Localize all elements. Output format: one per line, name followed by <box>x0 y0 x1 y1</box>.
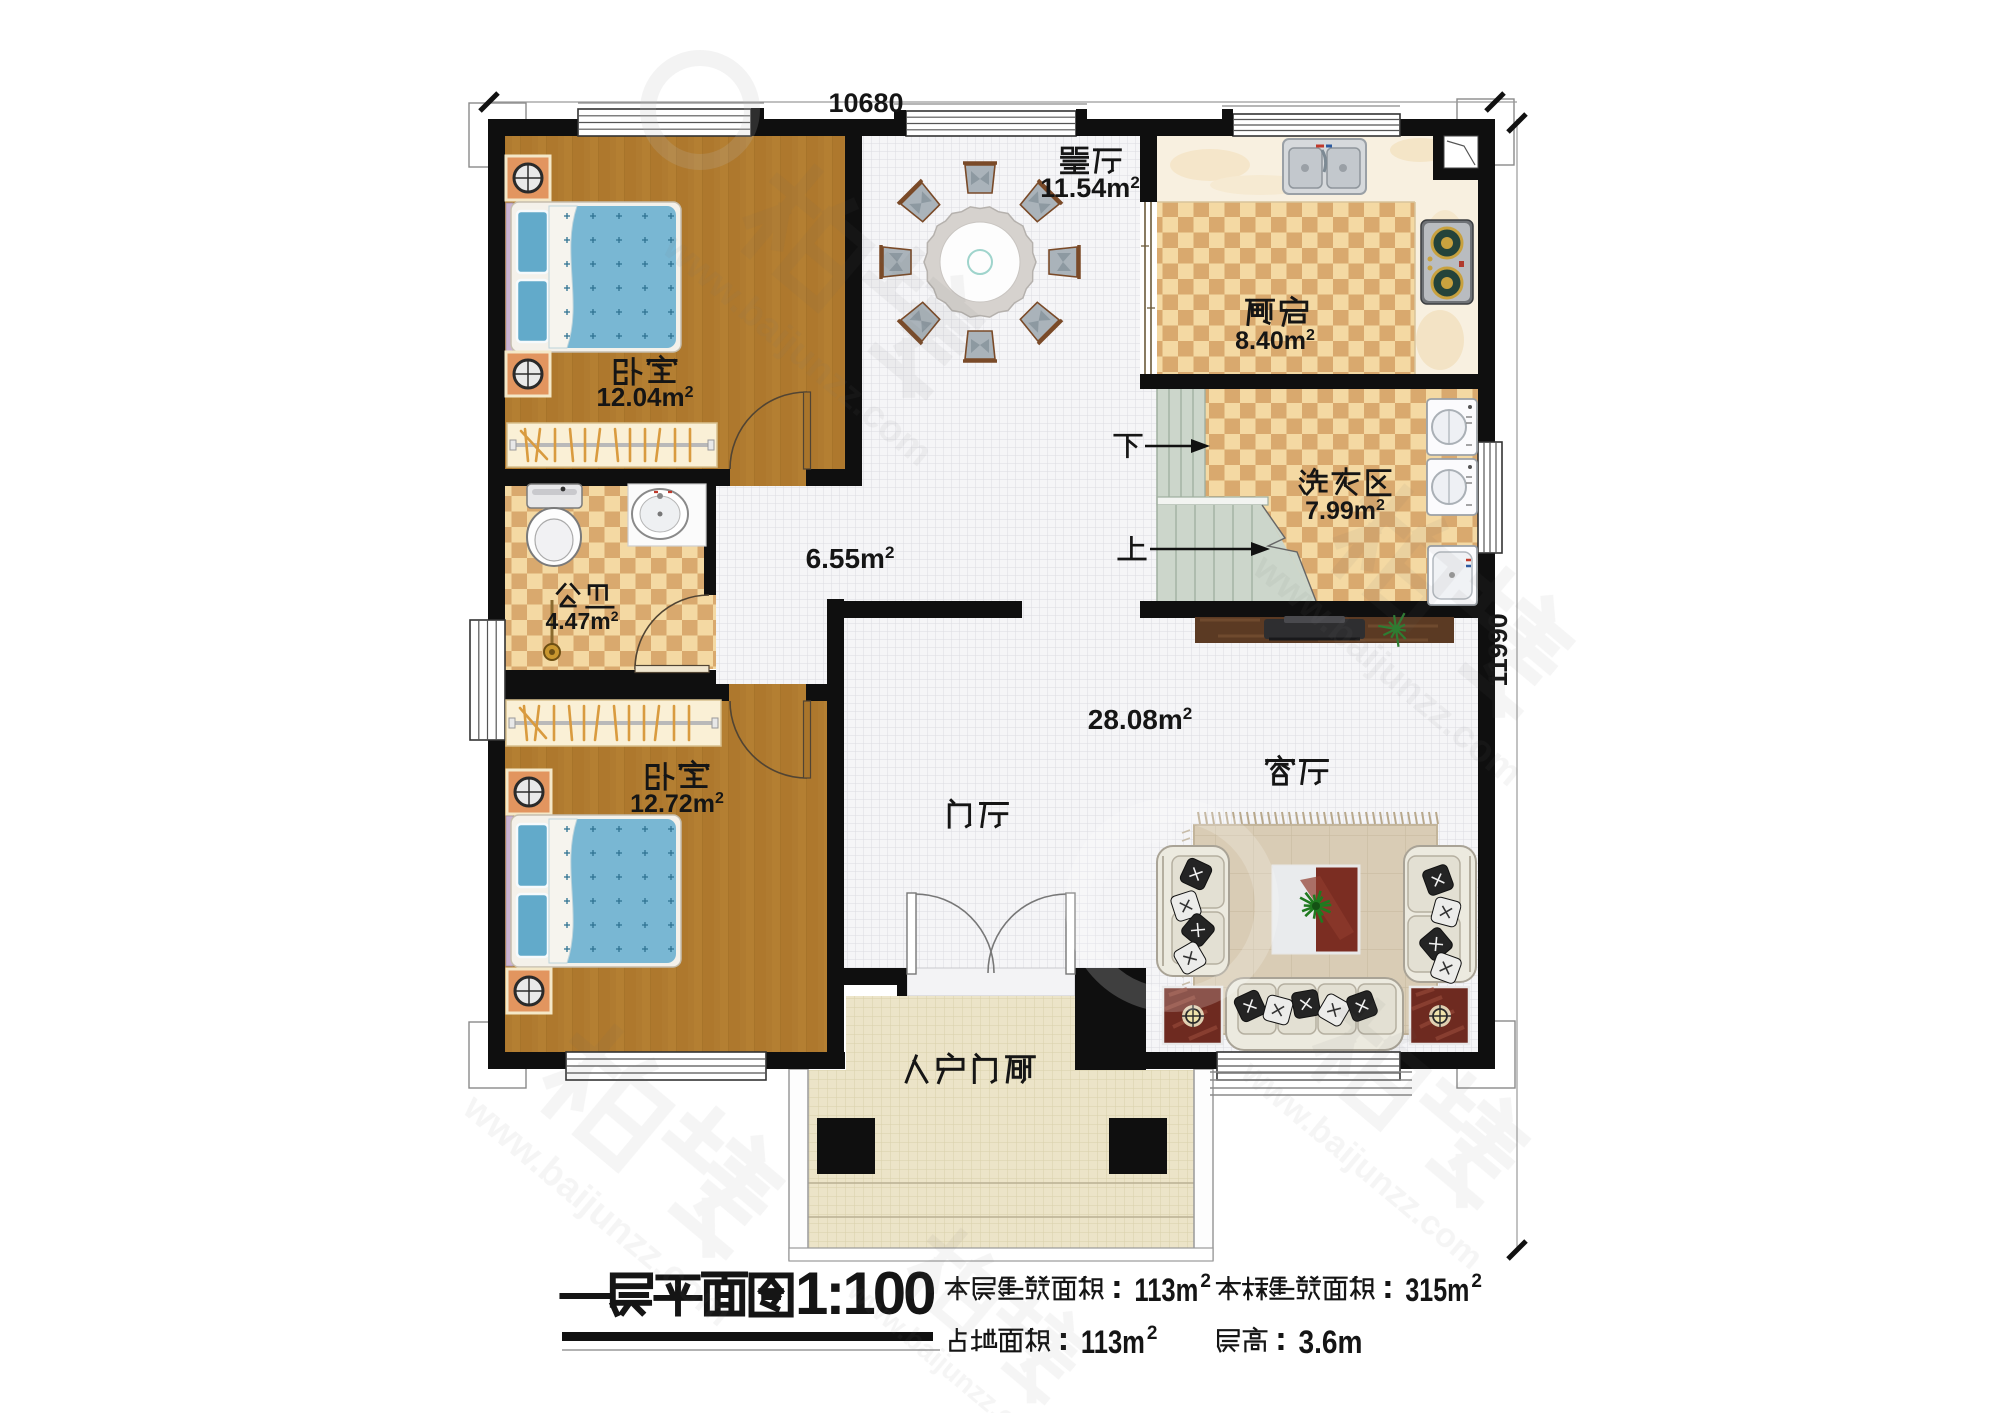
svg-text:4.47m2: 4.47m2 <box>545 608 618 634</box>
svg-text:12.72m2: 12.72m2 <box>630 790 724 818</box>
svg-text:2: 2 <box>1471 1271 1482 1292</box>
svg-text:2: 2 <box>1200 1271 1211 1292</box>
svg-text:2: 2 <box>1147 1323 1158 1344</box>
svg-text:8.40m2: 8.40m2 <box>1235 327 1315 355</box>
svg-text:315m: 315m <box>1405 1272 1469 1308</box>
svg-text:113m: 113m <box>1081 1324 1145 1360</box>
svg-text:28.08m2: 28.08m2 <box>1088 704 1192 735</box>
svg-text:10680: 10680 <box>828 88 903 118</box>
svg-text:12.04m2: 12.04m2 <box>596 382 693 412</box>
svg-text:11.54m2: 11.54m2 <box>1040 173 1140 203</box>
svg-text:6.55m2: 6.55m2 <box>806 543 895 574</box>
svg-text:113m: 113m <box>1134 1272 1198 1308</box>
svg-text:3.6m: 3.6m <box>1298 1324 1362 1360</box>
